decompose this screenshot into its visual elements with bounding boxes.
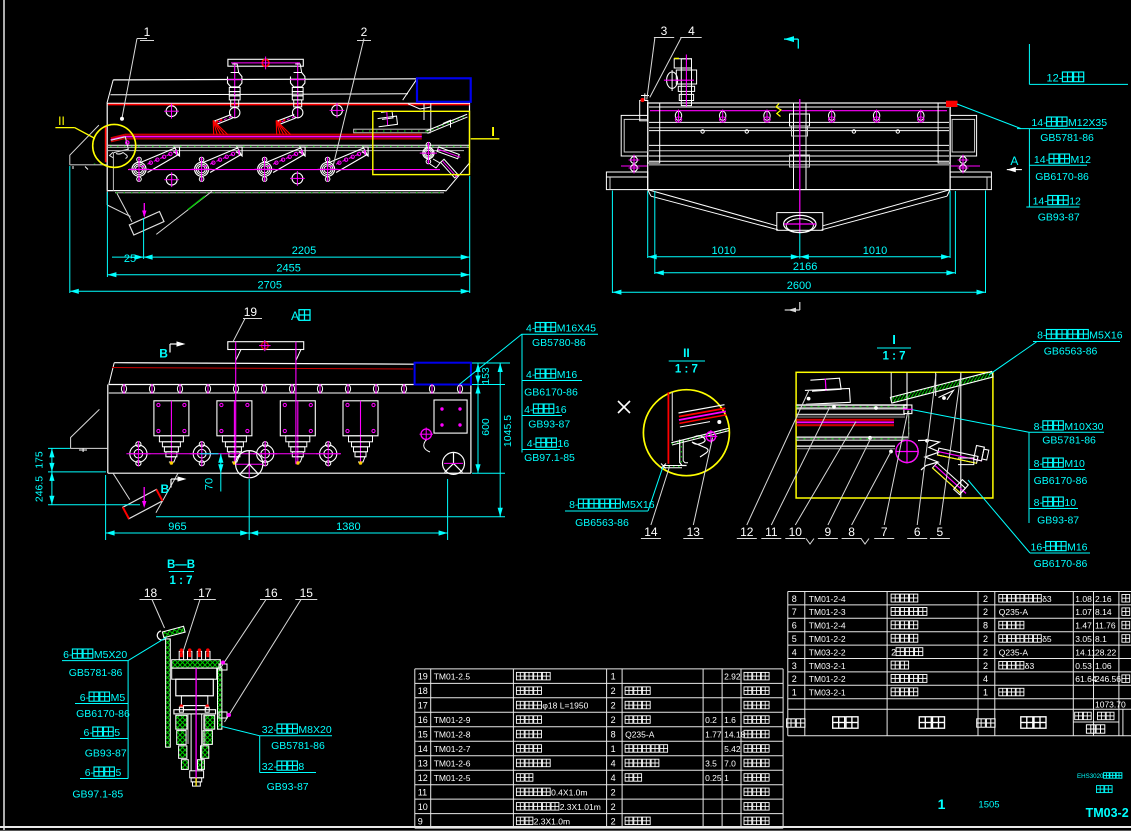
svg-text:3.5: 3.5 (705, 759, 717, 769)
svg-text:GB5781-86: GB5781-86 (69, 667, 123, 679)
svg-text:28.22: 28.22 (1095, 647, 1117, 657)
svg-text:70: 70 (203, 478, 215, 490)
svg-text:1045.5: 1045.5 (502, 415, 514, 447)
svg-text:1010: 1010 (863, 245, 887, 257)
svg-text:0.53: 0.53 (1075, 661, 1092, 671)
svg-text:1.77: 1.77 (705, 730, 722, 740)
svg-text:TM01-2-2: TM01-2-2 (809, 634, 846, 644)
svg-text:4: 4 (611, 773, 616, 783)
svg-text:GB5781-86: GB5781-86 (271, 740, 325, 752)
svg-text:2166: 2166 (793, 261, 817, 273)
svg-text:19: 19 (418, 672, 428, 682)
svg-text:M12: M12 (1071, 154, 1092, 166)
svg-text:3.05: 3.05 (1075, 634, 1092, 644)
svg-text:1.07: 1.07 (1075, 607, 1092, 617)
svg-text:1 : 7: 1 : 7 (675, 364, 698, 376)
svg-text:2: 2 (611, 802, 616, 812)
svg-text:8: 8 (848, 525, 855, 539)
svg-text:18: 18 (144, 586, 158, 600)
svg-text:2: 2 (611, 701, 616, 711)
svg-text:δ3: δ3 (1025, 661, 1035, 671)
svg-text:GB6170-86: GB6170-86 (1034, 475, 1088, 487)
svg-text:7: 7 (792, 607, 797, 617)
svg-text:9: 9 (825, 525, 832, 539)
svg-text:14-: 14- (1033, 196, 1049, 208)
svg-text:14: 14 (644, 525, 658, 539)
svg-text:1.47: 1.47 (1075, 621, 1092, 631)
svg-text:Q235-A: Q235-A (999, 607, 1029, 617)
svg-text:GB6170-86: GB6170-86 (1034, 558, 1088, 570)
svg-text:4: 4 (792, 647, 797, 657)
svg-text:TM01-2-4: TM01-2-4 (809, 594, 846, 604)
svg-text:4: 4 (611, 759, 616, 769)
svg-text:153: 153 (480, 367, 492, 385)
svg-text:GB97.1-85: GB97.1-85 (72, 789, 123, 801)
svg-text:2: 2 (361, 25, 368, 39)
svg-text:TM01-2-8: TM01-2-8 (434, 730, 471, 740)
svg-text:Q235-A: Q235-A (625, 730, 655, 740)
svg-text:17: 17 (198, 586, 212, 600)
svg-text:14.11: 14.11 (1075, 647, 1096, 657)
svg-text:B: B (159, 347, 168, 361)
svg-text:12: 12 (1069, 196, 1081, 208)
svg-text:TM03-2: TM03-2 (1086, 806, 1129, 820)
svg-text:8-: 8- (1034, 421, 1044, 433)
svg-text:11.76: 11.76 (1095, 621, 1116, 631)
svg-text:10: 10 (789, 525, 803, 539)
svg-text:2: 2 (983, 634, 988, 644)
svg-text:2.16: 2.16 (1095, 594, 1112, 604)
svg-text:GB97.1-85: GB97.1-85 (524, 452, 575, 464)
svg-text:2705: 2705 (258, 279, 282, 291)
svg-text:1380: 1380 (336, 521, 360, 533)
svg-text:GB93-87: GB93-87 (85, 748, 127, 760)
svg-text:A: A (291, 309, 299, 323)
svg-text:GB6170-86: GB6170-86 (524, 387, 578, 399)
svg-text:1 : 7: 1 : 7 (169, 575, 192, 587)
svg-text:4-: 4- (524, 404, 534, 416)
svg-text:I: I (491, 124, 495, 139)
svg-text:11: 11 (765, 525, 778, 539)
svg-text:M16X45: M16X45 (557, 323, 596, 335)
svg-text:I: I (892, 332, 896, 347)
svg-text:0.4X1.0m: 0.4X1.0m (551, 788, 587, 798)
svg-text:2: 2 (983, 594, 988, 604)
svg-text:δ3: δ3 (1042, 594, 1052, 604)
svg-text:8: 8 (298, 761, 304, 773)
svg-text:8: 8 (611, 730, 616, 740)
svg-text:2: 2 (611, 816, 616, 826)
svg-text:18: 18 (418, 686, 428, 696)
svg-text:GB6170-86: GB6170-86 (1035, 171, 1089, 183)
svg-text:1: 1 (983, 688, 988, 698)
svg-text:32-: 32- (262, 761, 278, 773)
svg-text:7: 7 (881, 525, 888, 539)
svg-text:8.14: 8.14 (1095, 607, 1112, 617)
svg-text:2600: 2600 (787, 280, 811, 292)
svg-text:6-: 6- (63, 649, 73, 661)
svg-text:19: 19 (244, 305, 258, 319)
svg-text:4: 4 (688, 24, 695, 38)
svg-text:2: 2 (983, 607, 988, 617)
svg-text:1: 1 (144, 25, 151, 39)
svg-text:TM01-2-9: TM01-2-9 (434, 715, 471, 725)
svg-text:11: 11 (418, 788, 427, 798)
svg-text:6-: 6- (85, 767, 95, 779)
svg-text:TM01-2-3: TM01-2-3 (809, 607, 846, 617)
svg-text:246.56: 246.56 (1095, 674, 1121, 684)
svg-text:10: 10 (418, 802, 428, 812)
svg-text:14-: 14- (1031, 117, 1047, 129)
svg-text:16-: 16- (1031, 542, 1047, 554)
svg-text:2: 2 (891, 647, 896, 657)
svg-text:1.06: 1.06 (1095, 661, 1112, 671)
svg-text:9: 9 (418, 816, 423, 826)
svg-text:TM01-2.5: TM01-2.5 (434, 672, 471, 682)
svg-text:6-: 6- (80, 692, 90, 704)
svg-text:M5X20: M5X20 (94, 649, 127, 661)
svg-text:2: 2 (983, 661, 988, 671)
svg-text:8-: 8- (1034, 497, 1044, 509)
svg-text:8-: 8- (1034, 458, 1044, 470)
svg-text:B: B (160, 482, 169, 496)
svg-text:13: 13 (418, 759, 428, 769)
svg-text:1 : 7: 1 : 7 (882, 351, 905, 363)
svg-text:14: 14 (418, 744, 428, 754)
svg-text:2: 2 (611, 686, 616, 696)
svg-text:TM01-2-2: TM01-2-2 (809, 674, 846, 684)
svg-text:246.5: 246.5 (34, 476, 46, 502)
svg-text:EHS3020: EHS3020 (1077, 773, 1104, 780)
svg-text:GB93-87: GB93-87 (267, 781, 309, 793)
svg-text:1: 1 (611, 744, 616, 754)
svg-text:0.25: 0.25 (705, 773, 722, 783)
svg-text:1: 1 (938, 796, 946, 812)
svg-text:0.2: 0.2 (705, 715, 717, 725)
svg-text:15: 15 (300, 586, 314, 600)
svg-text:TM01-2-4: TM01-2-4 (809, 621, 846, 631)
svg-text:16: 16 (264, 586, 278, 600)
svg-text:4: 4 (983, 674, 988, 684)
svg-text:3: 3 (792, 661, 797, 671)
svg-text:2: 2 (611, 715, 616, 725)
svg-text:Q235-A: Q235-A (999, 647, 1029, 657)
svg-text:16: 16 (418, 715, 428, 725)
svg-text:8-: 8- (1037, 330, 1047, 342)
svg-text:TM03-2-2: TM03-2-2 (809, 647, 846, 657)
svg-text:2: 2 (983, 647, 988, 657)
svg-text:M10: M10 (1064, 458, 1085, 470)
svg-text:12: 12 (418, 773, 428, 783)
svg-text:GB6170-86: GB6170-86 (76, 708, 130, 720)
svg-text:5: 5 (114, 727, 120, 739)
svg-text:3: 3 (661, 24, 668, 38)
svg-text:2205: 2205 (292, 245, 316, 257)
svg-text:14-: 14- (1034, 154, 1050, 166)
svg-text:25: 25 (124, 253, 136, 265)
svg-text:8: 8 (983, 621, 988, 631)
svg-text:1: 1 (724, 773, 729, 783)
svg-text:2.3X1.01m: 2.3X1.01m (560, 802, 601, 812)
svg-text:4-: 4- (526, 369, 536, 381)
svg-text:M10X30: M10X30 (1064, 421, 1103, 433)
svg-text:2455: 2455 (276, 263, 300, 275)
svg-text:GB6563-86: GB6563-86 (1044, 346, 1098, 358)
svg-text:1: 1 (792, 688, 797, 698)
svg-text:GB5781-86: GB5781-86 (1042, 435, 1096, 447)
svg-text:14.18: 14.18 (724, 730, 746, 740)
svg-text:M5X16: M5X16 (1089, 330, 1122, 342)
svg-text:TM01-2-5: TM01-2-5 (434, 773, 471, 783)
svg-text:II: II (58, 114, 65, 128)
svg-text:TM03-2-1: TM03-2-1 (809, 688, 846, 698)
svg-text:1505: 1505 (978, 800, 999, 811)
svg-text:GB5781-86: GB5781-86 (1040, 132, 1094, 144)
svg-text:5: 5 (937, 525, 944, 539)
svg-text:2.92: 2.92 (724, 672, 741, 682)
svg-text:GB93-87: GB93-87 (528, 419, 570, 431)
svg-text:17: 17 (418, 701, 428, 711)
svg-text:600: 600 (480, 418, 492, 436)
svg-text:4-: 4- (526, 323, 536, 335)
svg-text:M16: M16 (1067, 542, 1088, 554)
svg-text:965: 965 (168, 521, 186, 533)
svg-text:B—B: B—B (167, 559, 195, 571)
svg-text:12: 12 (740, 525, 754, 539)
svg-text:4-: 4- (527, 438, 537, 450)
svg-text:175: 175 (34, 451, 46, 469)
svg-text:7.0: 7.0 (724, 759, 736, 769)
svg-text:1.08: 1.08 (1075, 594, 1092, 604)
svg-text:8.1: 8.1 (1095, 634, 1107, 644)
svg-text:5: 5 (116, 767, 122, 779)
svg-text:8: 8 (792, 594, 797, 604)
svg-text:2: 2 (792, 674, 797, 684)
svg-text:GB93-87: GB93-87 (1037, 515, 1079, 527)
svg-text:II: II (683, 346, 690, 360)
svg-text:6: 6 (914, 525, 921, 539)
svg-text:2.3X1.0m: 2.3X1.0m (534, 816, 570, 826)
svg-text:1073.70: 1073.70 (1095, 699, 1126, 709)
svg-text:1010: 1010 (712, 245, 736, 257)
svg-text:61.64: 61.64 (1075, 674, 1097, 684)
svg-text:8-: 8- (569, 499, 579, 511)
svg-text:12-: 12- (1047, 73, 1063, 85)
svg-text:16: 16 (555, 404, 567, 416)
svg-text:δ5: δ5 (1042, 634, 1052, 644)
svg-text:32-: 32- (262, 724, 278, 736)
svg-text:5: 5 (792, 634, 797, 644)
svg-text:M12X35: M12X35 (1068, 117, 1107, 129)
svg-text:16: 16 (558, 438, 570, 450)
svg-text:GB6563-86: GB6563-86 (575, 517, 629, 529)
svg-text:10: 10 (1064, 497, 1076, 509)
svg-text:6-: 6- (84, 727, 94, 739)
svg-text:φ18 L=1950: φ18 L=1950 (542, 701, 588, 711)
svg-text:TM01-2-7: TM01-2-7 (434, 744, 471, 754)
svg-text:GB93-87: GB93-87 (1038, 212, 1080, 224)
svg-text:M8X20: M8X20 (298, 724, 331, 736)
svg-text:M16: M16 (557, 369, 578, 381)
svg-text:M5: M5 (111, 692, 126, 704)
svg-text:6: 6 (792, 621, 797, 631)
svg-text:1: 1 (611, 672, 616, 682)
svg-text:GB5780-86: GB5780-86 (532, 337, 586, 349)
svg-text:A: A (1010, 154, 1018, 168)
svg-text:1.6: 1.6 (724, 715, 736, 725)
svg-text:2: 2 (611, 788, 616, 798)
svg-text:5.42: 5.42 (724, 744, 741, 754)
svg-text:13: 13 (687, 525, 701, 539)
svg-text:TM01-2-6: TM01-2-6 (434, 759, 471, 769)
svg-text:TM03-2-1: TM03-2-1 (809, 661, 846, 671)
svg-text:15: 15 (418, 730, 428, 740)
